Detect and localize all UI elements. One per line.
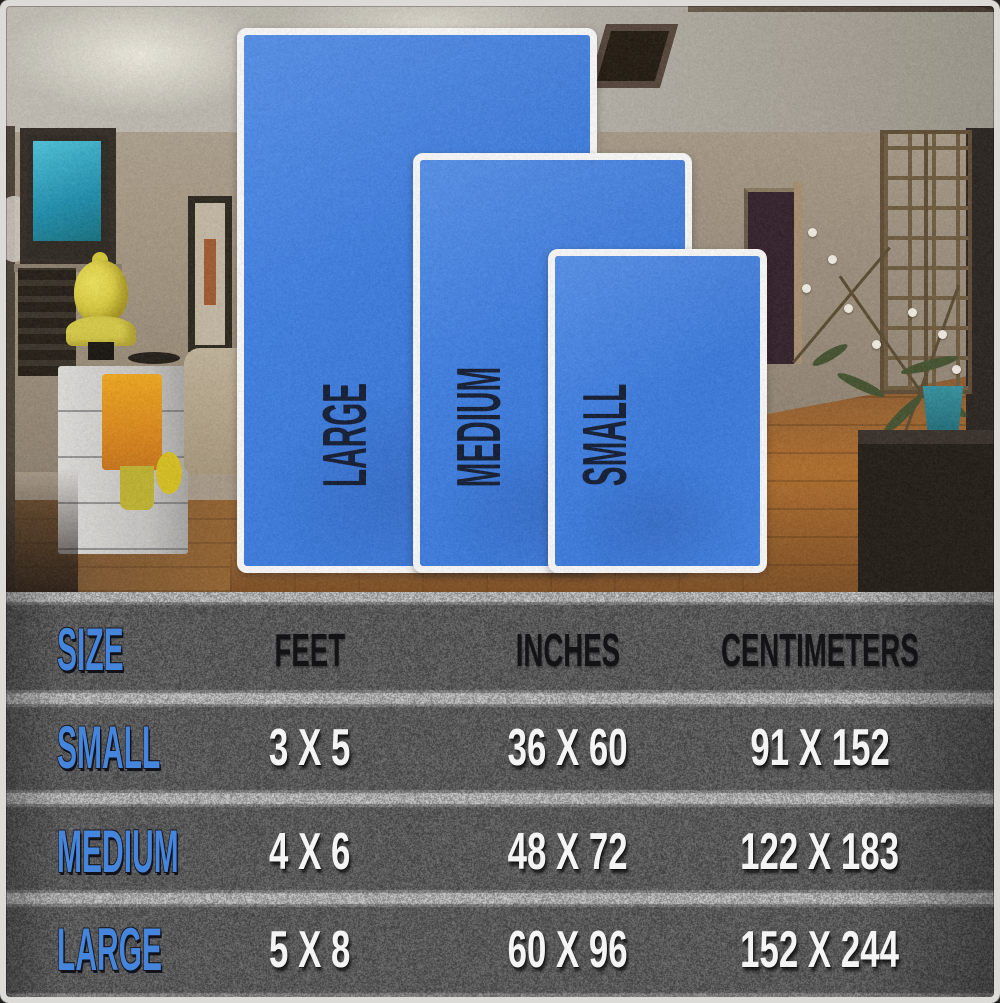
header-centimeters: CENTIMETERS: [690, 604, 950, 696]
yellow-pot: [156, 452, 182, 494]
row-medium-label: MEDIUM: [57, 822, 179, 882]
window-pane: [33, 141, 101, 241]
row-small-feet-value: 3 X 5: [269, 722, 350, 774]
rug-small-overlay: SMALL: [548, 249, 767, 573]
rug-large-label: LARGE: [315, 383, 377, 487]
orchid-flower: [908, 308, 917, 317]
orchid-flower: [938, 330, 947, 339]
row-small-label: SMALL: [57, 718, 160, 778]
header-size-label: SIZE: [57, 620, 124, 680]
size-table-section: SIZE FEET INCHES CENTIMETERS SMALL 3 X 5…: [0, 592, 1000, 1003]
table-row-medium: MEDIUM 4 X 6 48 X 72 122 X 183: [0, 804, 1000, 900]
tray: [128, 352, 180, 364]
table-row-small: SMALL 3 X 5 36 X 60 91 X 152: [0, 704, 1000, 792]
row-small-inches-value: 36 X 60: [507, 722, 627, 774]
green-towel: [120, 466, 154, 510]
row-small-centimeters: 91 X 152: [690, 704, 950, 792]
plant-leaf: [810, 341, 850, 370]
row-large-feet: 5 X 8: [205, 904, 415, 996]
row-large-centimeters: 152 X 244: [690, 904, 950, 996]
row-medium-feet-value: 4 X 6: [269, 826, 350, 878]
picture-art: [204, 239, 216, 305]
rug-size-chart-image: LARGE MEDIUM SMALL SIZE FEET INCHES CENT…: [0, 0, 1000, 1003]
room-photo-section: LARGE MEDIUM SMALL: [0, 0, 1000, 592]
orange-towel: [102, 374, 162, 470]
buddha-stand: [88, 342, 114, 360]
table-header-row: SIZE FEET INCHES CENTIMETERS: [0, 604, 1000, 696]
orchid-flower: [828, 255, 837, 264]
header-feet: FEET: [205, 604, 415, 696]
rug-medium-label: MEDIUM: [449, 367, 511, 488]
orchid-flower: [802, 284, 811, 293]
orchid-plant: [780, 200, 1000, 440]
plant-leaf: [835, 369, 886, 400]
orchid-flower: [844, 304, 853, 313]
header-inches-label: INCHES: [515, 627, 619, 673]
row-small-feet: 3 X 5: [205, 704, 415, 792]
row-large-feet-value: 5 X 8: [269, 924, 350, 976]
row-medium-inches-value: 48 X 72: [507, 826, 627, 878]
beige-sofa: [184, 348, 238, 474]
orchid-flower: [808, 228, 817, 237]
orchid-flower: [952, 365, 961, 374]
wall-picture: [188, 196, 232, 352]
header-inches: INCHES: [450, 604, 685, 696]
table-row-large: LARGE 5 X 8 60 X 96 152 X 244: [0, 904, 1000, 996]
rug-small-label: SMALL: [575, 384, 637, 486]
row-medium-inches: 48 X 72: [450, 804, 685, 900]
orchid-flower: [872, 340, 881, 349]
ceiling-beam: [688, 0, 1000, 12]
dark-side-table: [858, 430, 1000, 592]
bottom-left-shadow: [0, 468, 78, 592]
row-small-centimeters-value: 91 X 152: [750, 722, 889, 774]
buddha-head: [74, 260, 128, 324]
header-centimeters-label: CENTIMETERS: [721, 627, 919, 673]
row-large-inches-value: 60 X 96: [507, 924, 627, 976]
row-medium-centimeters: 122 X 183: [690, 804, 950, 900]
teal-window: [20, 128, 116, 266]
row-large-label: LARGE: [57, 920, 162, 980]
header-feet-label: FEET: [275, 627, 346, 673]
row-large-centimeters-value: 152 X 244: [741, 924, 900, 976]
buddha-statue: [66, 256, 136, 360]
row-large-inches: 60 X 96: [450, 904, 685, 996]
row-small-inches: 36 X 60: [450, 704, 685, 792]
row-medium-centimeters-value: 122 X 183: [741, 826, 900, 878]
row-medium-feet: 4 X 6: [205, 804, 415, 900]
